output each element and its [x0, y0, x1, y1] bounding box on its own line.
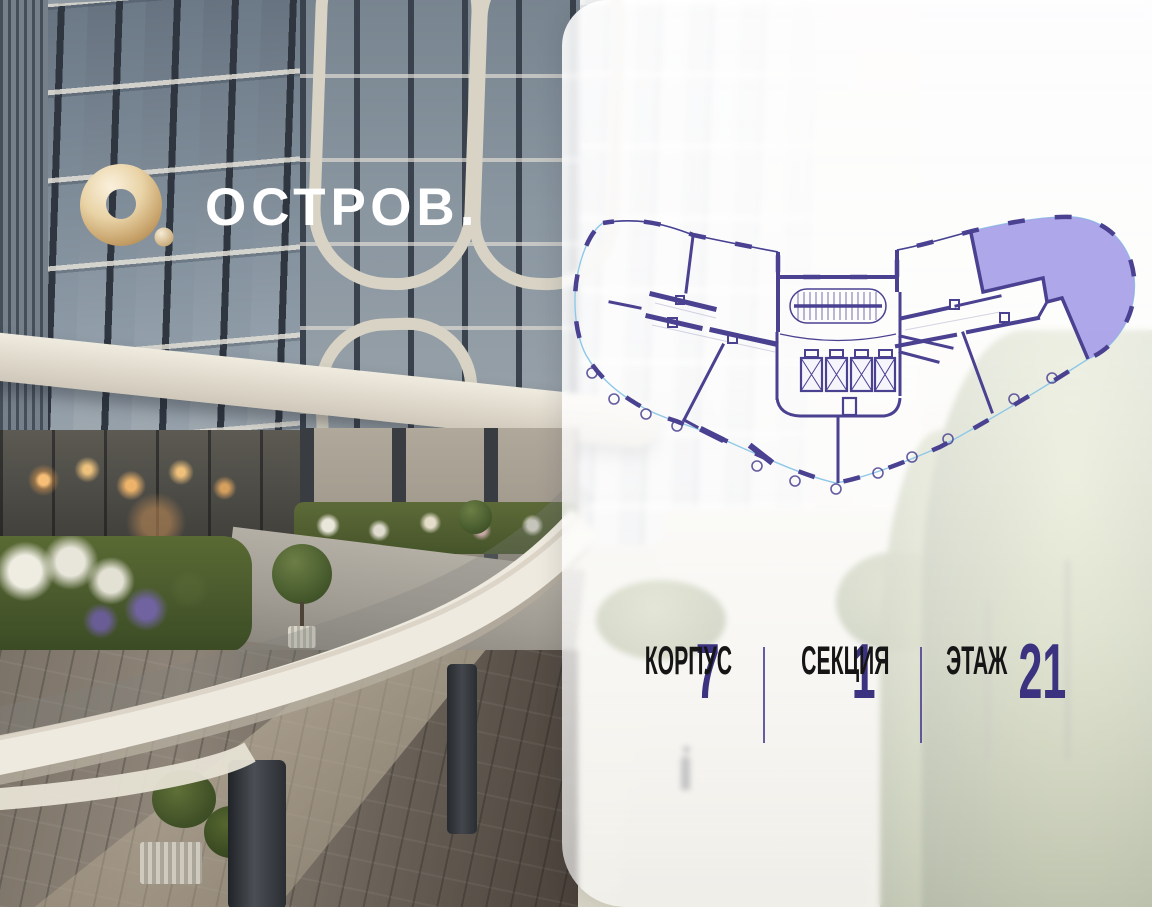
screenshot: ОСТРОВ. 7 КОРПУС 1 СЕКЦИЯ 21 ЭТАЖ: [0, 0, 1152, 907]
stat-floor-value: 21: [1019, 638, 1067, 704]
stat-divider: [763, 647, 765, 743]
stat-floor-label: ЭТАЖ: [946, 644, 1007, 678]
bg-bridge-band: [0, 0, 660, 907]
stat-section-label: СЕКЦИЯ: [801, 644, 889, 678]
logo-ring-icon: [80, 160, 210, 270]
stat-building-label: КОРПУС: [645, 644, 732, 678]
logo-wordmark: ОСТРОВ.: [205, 180, 535, 240]
stat-divider: [920, 647, 922, 743]
info-panel: 7 КОРПУС 1 СЕКЦИЯ 21 ЭТАЖ: [562, 0, 1152, 907]
